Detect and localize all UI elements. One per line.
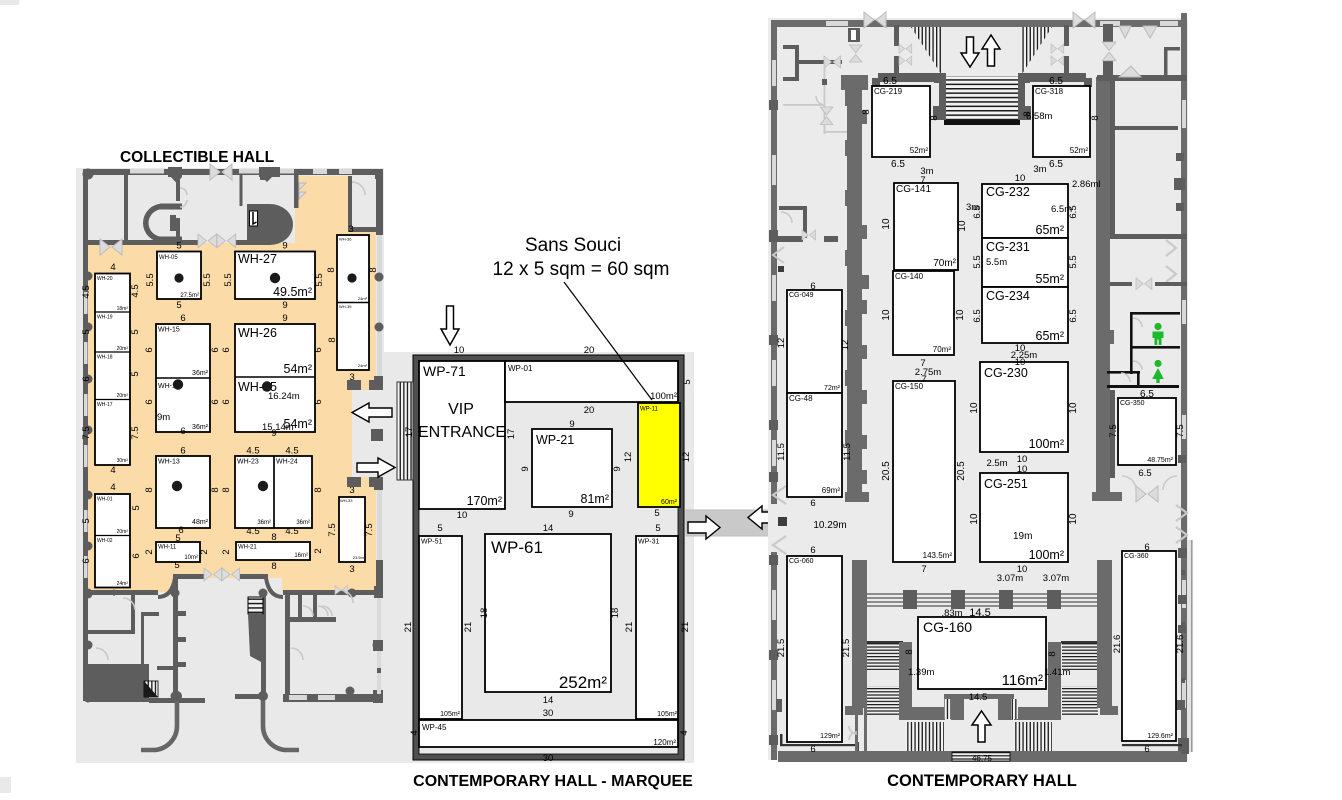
svg-text:9m: 9m: [157, 412, 170, 423]
svg-text:48m²: 48m²: [192, 519, 209, 526]
svg-text:6: 6: [810, 744, 815, 755]
svg-text:81m²: 81m²: [581, 492, 609, 506]
svg-text:WH-24: WH-24: [276, 459, 298, 466]
svg-text:18: 18: [610, 608, 621, 619]
svg-text:CG-140: CG-140: [895, 272, 924, 281]
svg-text:24m²: 24m²: [358, 296, 368, 301]
svg-text:5.5: 5.5: [202, 273, 213, 286]
svg-text:CG-360: CG-360: [1124, 553, 1149, 560]
svg-text:WH-35: WH-35: [339, 304, 352, 309]
svg-text:6: 6: [221, 399, 232, 404]
svg-text:52m²: 52m²: [910, 146, 929, 155]
svg-text:2: 2: [144, 549, 155, 554]
svg-text:4: 4: [409, 730, 420, 735]
svg-text:6.5: 6.5: [1068, 309, 1079, 322]
svg-text:CG-231: CG-231: [986, 240, 1030, 254]
svg-text:7: 7: [920, 175, 925, 186]
svg-text:9: 9: [282, 313, 287, 324]
svg-text:CG-232: CG-232: [986, 185, 1030, 199]
svg-text:2.75m: 2.75m: [915, 367, 941, 378]
svg-text:6: 6: [313, 347, 324, 352]
svg-text:.83m: .83m: [941, 608, 962, 619]
svg-text:116m²: 116m²: [1002, 672, 1043, 689]
svg-text:2.86ml: 2.86ml: [1072, 179, 1101, 190]
svg-text:6: 6: [1144, 542, 1149, 553]
svg-text:1.39m: 1.39m: [908, 667, 934, 678]
svg-text:8: 8: [861, 109, 872, 114]
svg-text:69m²: 69m²: [822, 486, 841, 495]
svg-text:30m²: 30m²: [117, 458, 129, 464]
svg-text:5: 5: [176, 300, 181, 311]
svg-text:CG-234: CG-234: [986, 289, 1030, 303]
svg-text:10m²: 10m²: [184, 555, 198, 561]
svg-text:10: 10: [1068, 402, 1079, 414]
svg-text:7.5: 7.5: [81, 426, 92, 439]
svg-text:6: 6: [144, 399, 155, 404]
svg-text:72m²: 72m²: [824, 385, 841, 392]
svg-text:143.5m²: 143.5m²: [923, 551, 953, 560]
svg-text:4.5: 4.5: [285, 526, 298, 537]
svg-text:21.5: 21.5: [776, 639, 787, 658]
svg-text:WP-01: WP-01: [508, 364, 533, 373]
svg-text:8: 8: [210, 487, 221, 492]
svg-text:WH-20: WH-20: [97, 276, 113, 282]
svg-text:4.5: 4.5: [246, 446, 259, 457]
svg-text:8: 8: [929, 115, 940, 120]
svg-text:WH-26: WH-26: [238, 326, 277, 340]
svg-text:21: 21: [624, 622, 635, 633]
svg-text:5: 5: [130, 371, 141, 376]
svg-text:WH-33: WH-33: [340, 498, 353, 503]
svg-text:8: 8: [327, 337, 338, 342]
svg-text:30: 30: [543, 708, 554, 719]
svg-text:21: 21: [680, 622, 691, 633]
svg-text:20.5: 20.5: [881, 461, 892, 481]
svg-text:105m²: 105m²: [657, 711, 678, 718]
svg-text:2: 2: [199, 549, 210, 554]
svg-text:9: 9: [282, 300, 287, 311]
svg-text:7.5: 7.5: [1108, 424, 1119, 437]
svg-text:27.5m²: 27.5m²: [180, 293, 199, 299]
svg-text:6: 6: [81, 376, 92, 381]
svg-text:10: 10: [1015, 357, 1026, 368]
svg-text:7.5: 7.5: [1175, 424, 1186, 437]
svg-text:5: 5: [130, 329, 141, 334]
svg-text:14.5: 14.5: [969, 692, 988, 703]
svg-text:10: 10: [969, 513, 980, 525]
svg-text:4: 4: [679, 730, 690, 735]
svg-text:8: 8: [368, 267, 379, 272]
svg-text:6: 6: [180, 426, 185, 437]
svg-text:6: 6: [810, 498, 815, 509]
svg-text:100m²: 100m²: [650, 391, 677, 402]
svg-text:10: 10: [955, 309, 966, 321]
svg-text:105m²: 105m²: [440, 711, 461, 718]
svg-text:5: 5: [81, 329, 92, 334]
svg-text:10: 10: [881, 218, 892, 230]
svg-text:5: 5: [437, 523, 442, 534]
svg-text:VIP: VIP: [448, 401, 474, 418]
svg-text:6: 6: [313, 399, 324, 404]
svg-text:5: 5: [655, 523, 660, 534]
svg-text:5: 5: [175, 533, 180, 544]
svg-text:WH-02: WH-02: [97, 538, 113, 544]
svg-text:10: 10: [1015, 173, 1026, 184]
svg-text:CG-060: CG-060: [789, 558, 814, 565]
svg-text:6: 6: [81, 558, 92, 563]
svg-text:9: 9: [568, 509, 573, 520]
svg-text:4.5: 4.5: [130, 284, 141, 297]
svg-text:11.5: 11.5: [842, 443, 853, 461]
svg-text:5.5: 5.5: [314, 273, 325, 286]
svg-text:5.5m: 5.5m: [986, 257, 1007, 268]
svg-text:4.5: 4.5: [246, 526, 259, 537]
svg-text:7.5: 7.5: [364, 523, 375, 536]
svg-text:46.75: 46.75: [972, 754, 993, 763]
svg-text:52m²: 52m²: [1070, 146, 1089, 155]
svg-text:65m²: 65m²: [1036, 223, 1064, 237]
svg-text:19m: 19m: [1013, 531, 1032, 542]
svg-text:11.5: 11.5: [776, 443, 787, 461]
svg-text:8: 8: [1022, 111, 1033, 116]
svg-text:54m²: 54m²: [284, 362, 312, 376]
svg-text:CG-350: CG-350: [1120, 400, 1145, 407]
svg-text:2.5m: 2.5m: [986, 458, 1007, 469]
svg-text:17: 17: [506, 429, 517, 440]
svg-text:70m²: 70m²: [933, 345, 952, 354]
svg-text:55m²: 55m²: [1036, 272, 1064, 286]
svg-text:10: 10: [1017, 464, 1028, 475]
svg-text:WP-71: WP-71: [423, 363, 466, 379]
svg-text:9: 9: [282, 241, 287, 252]
svg-text:170m²: 170m²: [467, 494, 502, 508]
svg-text:65m²: 65m²: [1036, 329, 1064, 343]
svg-text:6.5: 6.5: [972, 309, 983, 322]
svg-text:6: 6: [210, 399, 221, 404]
svg-text:10: 10: [1068, 513, 1079, 525]
svg-text:3: 3: [349, 564, 354, 575]
svg-text:WH-17: WH-17: [97, 402, 113, 408]
svg-text:10: 10: [969, 402, 980, 414]
svg-text:8: 8: [144, 487, 155, 492]
svg-text:60m²: 60m²: [661, 499, 678, 506]
svg-text:9: 9: [271, 428, 276, 439]
svg-text:ENTRANCE: ENTRANCE: [418, 424, 506, 441]
svg-text:8: 8: [271, 561, 276, 572]
svg-text:Sans Souci: Sans Souci: [525, 235, 621, 256]
svg-text:2: 2: [313, 548, 324, 553]
svg-text:WH-05: WH-05: [159, 255, 178, 261]
svg-text:6.5: 6.5: [883, 76, 897, 87]
svg-text:4: 4: [110, 482, 115, 493]
svg-text:5: 5: [654, 508, 659, 519]
svg-text:WP-11: WP-11: [640, 407, 659, 413]
svg-text:5.5: 5.5: [972, 255, 983, 268]
svg-text:20: 20: [584, 345, 595, 356]
svg-text:4.5: 4.5: [285, 446, 298, 457]
svg-text:6.5: 6.5: [1068, 205, 1079, 218]
svg-text:14: 14: [543, 695, 554, 706]
svg-text:WH-23: WH-23: [237, 459, 259, 466]
svg-text:5: 5: [174, 560, 179, 571]
svg-text:4: 4: [110, 465, 115, 476]
svg-text:CG-160: CG-160: [923, 619, 972, 635]
svg-text:54m²: 54m²: [284, 417, 312, 431]
svg-text:6: 6: [221, 347, 232, 352]
svg-text:6.5: 6.5: [1049, 76, 1063, 87]
svg-text:120m²: 120m²: [653, 738, 676, 747]
svg-text:CG-141: CG-141: [896, 184, 931, 195]
svg-text:8: 8: [326, 267, 337, 272]
svg-text:10: 10: [457, 510, 468, 521]
svg-text:WP-21: WP-21: [536, 433, 574, 447]
svg-text:23.5m: 23.5m: [353, 555, 365, 560]
svg-text:CONTEMPORARY HALL: CONTEMPORARY HALL: [887, 772, 1077, 790]
svg-text:9: 9: [520, 466, 531, 471]
svg-text:21.6: 21.6: [1112, 635, 1123, 654]
svg-text:6.5: 6.5: [1138, 468, 1151, 479]
svg-text:7.5: 7.5: [327, 523, 338, 536]
svg-text:CG-150: CG-150: [895, 382, 924, 391]
svg-text:12: 12: [840, 340, 851, 351]
svg-text:7.5: 7.5: [130, 426, 141, 439]
svg-text:5.5: 5.5: [223, 273, 234, 286]
svg-text:8: 8: [1090, 115, 1101, 120]
svg-text:70m²: 70m²: [933, 258, 956, 269]
svg-text:6: 6: [180, 313, 185, 324]
svg-text:21: 21: [463, 622, 474, 633]
svg-text:252m²: 252m²: [559, 673, 608, 692]
svg-text:10: 10: [957, 220, 968, 232]
svg-text:2: 2: [221, 549, 232, 554]
svg-text:36m²: 36m²: [192, 370, 209, 377]
svg-text:30: 30: [543, 753, 554, 764]
svg-text:WP-51: WP-51: [421, 539, 443, 546]
svg-text:20: 20: [584, 405, 595, 416]
svg-text:21: 21: [403, 622, 414, 633]
svg-text:4.5: 4.5: [81, 285, 92, 298]
svg-text:6.5: 6.5: [1049, 159, 1063, 170]
svg-text:WH-36: WH-36: [339, 237, 352, 242]
svg-text:10.29m: 10.29m: [813, 520, 846, 531]
svg-text:10: 10: [881, 309, 892, 321]
svg-text:9: 9: [569, 419, 574, 430]
svg-text:6: 6: [210, 347, 221, 352]
svg-text:5: 5: [682, 379, 693, 384]
svg-text:4: 4: [110, 262, 115, 273]
svg-text:5: 5: [176, 241, 181, 252]
svg-text:WH-15: WH-15: [158, 327, 180, 334]
svg-text:CG-318: CG-318: [1035, 87, 1064, 96]
svg-text:WH-19: WH-19: [97, 315, 113, 321]
svg-text:CONTEMPORARY HALL - MARQUEE: CONTEMPORARY HALL - MARQUEE: [413, 773, 693, 790]
svg-text:18m²: 18m²: [117, 306, 129, 312]
svg-text:WH-18: WH-18: [97, 355, 113, 361]
svg-text:5: 5: [81, 518, 92, 523]
svg-text:3: 3: [348, 224, 353, 235]
svg-text:20m²: 20m²: [117, 346, 129, 352]
svg-text:20m²: 20m²: [117, 393, 129, 399]
svg-text:9: 9: [612, 466, 623, 471]
svg-text:8: 8: [221, 487, 232, 492]
svg-text:14: 14: [543, 523, 554, 534]
svg-text:14.5: 14.5: [969, 607, 990, 619]
svg-text:8: 8: [313, 487, 324, 492]
svg-text:WH-01: WH-01: [97, 497, 113, 503]
svg-text:5: 5: [131, 505, 142, 510]
svg-text:CG-230: CG-230: [984, 366, 1028, 380]
svg-text:WH-21: WH-21: [238, 545, 257, 551]
svg-text:6: 6: [144, 347, 155, 352]
svg-text:WH-27: WH-27: [238, 252, 277, 266]
svg-text:10: 10: [454, 345, 465, 356]
svg-text:WP-61: WP-61: [491, 538, 543, 557]
svg-text:8: 8: [271, 532, 276, 543]
svg-text:WH-11: WH-11: [158, 545, 177, 551]
svg-text:CG-049: CG-049: [789, 292, 814, 299]
svg-text:5.5: 5.5: [1068, 255, 1079, 268]
svg-text:6: 6: [180, 446, 185, 457]
svg-text:3m: 3m: [1033, 164, 1046, 175]
svg-text:36m²: 36m²: [192, 424, 209, 431]
svg-text:WP-31: WP-31: [638, 539, 660, 546]
svg-text:20m²: 20m²: [117, 529, 129, 535]
svg-text:12: 12: [623, 452, 634, 463]
svg-text:8: 8: [1047, 651, 1058, 656]
svg-text:16.24m: 16.24m: [268, 391, 300, 402]
svg-text:129m²: 129m²: [820, 733, 841, 740]
svg-text:24m²: 24m²: [117, 581, 129, 587]
svg-text:18: 18: [479, 608, 490, 619]
svg-text:21.5: 21.5: [841, 639, 852, 658]
svg-text:12: 12: [776, 338, 787, 349]
svg-text:COLLECTIBLE HALL: COLLECTIBLE HALL: [120, 149, 274, 166]
svg-text:129.6m²: 129.6m²: [1147, 733, 1173, 740]
svg-text:6: 6: [810, 545, 815, 556]
svg-text:100m²: 100m²: [1029, 548, 1064, 562]
svg-text:CG-219: CG-219: [874, 87, 903, 96]
svg-text:6: 6: [131, 553, 142, 558]
svg-text:16m²: 16m²: [294, 553, 308, 559]
svg-text:WP-45: WP-45: [422, 723, 447, 732]
svg-text:48.75m²: 48.75m²: [1147, 457, 1173, 464]
svg-text:WH-13: WH-13: [158, 459, 180, 466]
svg-text:12: 12: [681, 452, 692, 463]
svg-text:6.5: 6.5: [1140, 389, 1154, 400]
svg-text:3.07m: 3.07m: [1043, 573, 1069, 584]
svg-text:17: 17: [404, 427, 415, 438]
svg-text:6.5: 6.5: [891, 159, 905, 170]
svg-text:6: 6: [810, 281, 815, 292]
svg-text:7: 7: [921, 564, 926, 575]
svg-text:CG-251: CG-251: [984, 477, 1028, 491]
svg-text:100m²: 100m²: [1029, 437, 1064, 451]
svg-text:CG-48: CG-48: [789, 394, 813, 403]
svg-text:24m²: 24m²: [358, 363, 368, 368]
svg-text:49.5m²: 49.5m²: [273, 285, 312, 299]
svg-text:1.41m: 1.41m: [1044, 667, 1070, 678]
svg-text:7: 7: [921, 374, 926, 385]
svg-text:8: 8: [904, 649, 915, 654]
svg-text:12 x 5 sqm = 60 sqm: 12 x 5 sqm = 60 sqm: [493, 259, 670, 280]
svg-text:20.5: 20.5: [956, 461, 967, 481]
svg-text:6.5: 6.5: [972, 205, 983, 218]
svg-text:21.6: 21.6: [1175, 635, 1186, 654]
svg-text:6: 6: [1144, 744, 1149, 755]
svg-text:5.5: 5.5: [145, 273, 156, 286]
svg-text:3.07m: 3.07m: [997, 573, 1023, 584]
